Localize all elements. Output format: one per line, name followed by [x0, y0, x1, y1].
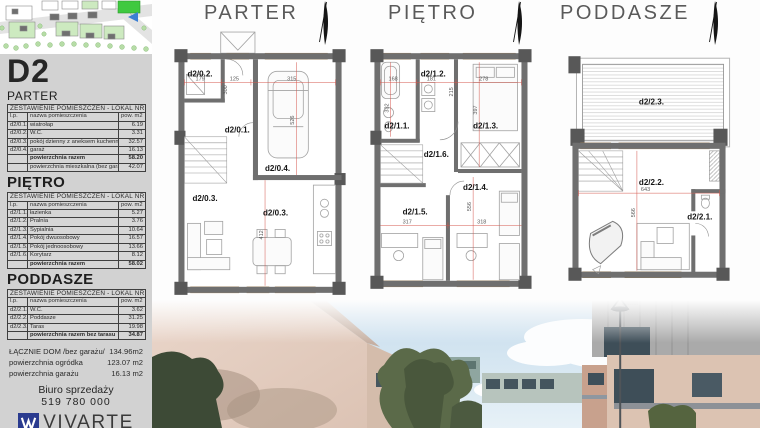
col-area: pow. m2 — [119, 201, 146, 209]
cell-area: 58.02 — [119, 260, 146, 268]
total-value: 134.96m2 — [109, 347, 143, 358]
entry-canopy — [221, 32, 255, 53]
plan-title-parter: PARTER — [204, 2, 298, 25]
parter-floor-plan: 179 125 315 300 526 412 d2/0.2. d2/0.1. … — [164, 26, 356, 318]
total-line: ŁĄCZNIE DOM /bez garażu/ 134.96m2 — [9, 347, 143, 358]
poddasze-room-table: ZESTAWIENIE POMIESZCZEŃ - LOKAL NR d2 l.… — [7, 289, 146, 340]
table-row: d2/0.2. W.C. 3.31 — [8, 130, 146, 138]
cell-area: 10.64 — [119, 226, 146, 234]
room-label: d2/1.2. — [421, 69, 446, 78]
cell-area: 3.76 — [119, 218, 146, 226]
summary-row: powierzchnia mieszkalna (bez garażu) 42.… — [8, 163, 146, 171]
dim-label: 315 — [287, 76, 296, 82]
cell-lp: d2/2.3. — [8, 323, 28, 331]
dim-label: 556 — [467, 202, 473, 211]
col-name: nazwa pomieszczenia — [28, 201, 119, 209]
col-lp: l.p. — [8, 201, 28, 209]
dim-label: 526 — [290, 115, 296, 124]
dim-label: 215 — [449, 87, 455, 96]
section-heading-pietro: PIĘTRO — [7, 174, 145, 191]
cell-name: Taras — [28, 323, 119, 331]
table-row: d2/2.3. Taras 19.98 — [8, 323, 146, 331]
summary-row: powierzchnia razem 58.02 — [8, 260, 146, 268]
cell-name: powierzchnia mieszkalna (bez garażu) — [28, 163, 119, 171]
site-plan-map — [0, 0, 152, 54]
table-row: d2/1.1. łazienka 5.27 — [8, 210, 146, 218]
room-label: d2/0.3. — [263, 208, 288, 217]
cell-name: garaż — [28, 147, 119, 155]
brand-row: VIVARTE — [0, 412, 152, 428]
dim-label: 125 — [230, 76, 239, 82]
cell-area: 32.57 — [119, 138, 146, 146]
dim-label: 317 — [403, 219, 412, 225]
table-row: d2/0.3. pokój dzienny z aneksem kuchenny… — [8, 138, 146, 146]
col-name: nazwa pomieszczenia — [28, 298, 119, 306]
cell-lp: d2/1.2. — [8, 218, 28, 226]
cell-area: 31.25 — [119, 315, 146, 323]
cell-name: powierzchnia razem — [28, 155, 119, 163]
plans-area: PARTER PIĘTRO PODDASZE — [152, 0, 760, 428]
cell-area: 58.20 — [119, 155, 146, 163]
cell-name: łazienka — [28, 210, 119, 218]
table-title: ZESTAWIENIE POMIESZCZEŃ - LOKAL NR d2 — [8, 289, 146, 297]
poddasze-floor-plan: 643 566 d2/2.3. d2/2.2. d2/2.1. — [552, 26, 746, 318]
cell-name: Poddasze — [28, 315, 119, 323]
cell-name: Korytarz — [28, 252, 119, 260]
car-icon — [268, 71, 308, 158]
section-heading-parter: PARTER — [7, 89, 145, 103]
room-label: d2/1.6. — [424, 150, 449, 159]
room-label: d2/1.1. — [385, 122, 410, 131]
cell-lp: d2/1.6. — [8, 252, 28, 260]
total-value: 16.13 m2 — [111, 369, 143, 380]
cell-lp: d2/0.1. — [8, 121, 28, 129]
room-label: d2/0.3. — [193, 194, 218, 203]
table-row: d2/2.1. W.C. 3.62 — [8, 306, 146, 314]
room-label: d2/1.5. — [403, 207, 428, 216]
section-heading-poddasze: PODDASZE — [7, 271, 145, 288]
dim-label: 643 — [641, 187, 650, 193]
cell-name: pokój dzienny z aneksem kuchennym — [28, 138, 119, 146]
cell-area: 5.27 — [119, 210, 146, 218]
table-row: d2/1.6. Korytarz 8.12 — [8, 252, 146, 260]
room-label: d2/1.4. — [463, 183, 488, 192]
parter-room-table: ZESTAWIENIE POMIESZCZEŃ - LOKAL NR d2 l.… — [7, 104, 146, 172]
table-row: d2/1.2. Pralnia 3.76 — [8, 218, 146, 226]
cell-name: W.C. — [28, 306, 119, 314]
cell-name: wiatrołap — [28, 121, 119, 129]
stairs — [184, 137, 226, 183]
sales-office-phone: 519 780 000 — [0, 396, 152, 408]
total-label: powierzchnia garażu — [9, 369, 79, 380]
total-line: powierzchnia ogródka 123.07 m2 — [9, 358, 143, 369]
table-row: d2/0.4. garaż 16.13 — [8, 147, 146, 155]
cell-lp: d2/1.4. — [8, 235, 28, 243]
total-value: 123.07 m2 — [107, 358, 143, 369]
summary-row: powierzchnia razem bez tarasu 34.87 — [8, 331, 146, 339]
brand-wordmark: VIVARTE — [43, 412, 134, 428]
cell-lp: d2/0.2. — [8, 130, 28, 138]
cell-area: 13.66 — [119, 243, 146, 251]
table-row: d2/1.3. Sypialnia 10.64 — [8, 226, 146, 234]
site-highlight-unit — [118, 1, 140, 13]
cell-area: 3.31 — [119, 130, 146, 138]
col-lp: l.p. — [8, 298, 28, 306]
cell-lp: d2/1.1. — [8, 210, 28, 218]
total-line: powierzchnia garażu 16.13 m2 — [9, 369, 143, 380]
room-label: d2/0.1. — [225, 126, 250, 135]
cell-area: 3.62 — [119, 306, 146, 314]
unit-title: D2 — [7, 55, 152, 87]
total-label: powierzchnia ogródka — [9, 358, 83, 369]
table-row: d2/1.4. Pokój dwuosobowy 16.57 — [8, 235, 146, 243]
cell-lp: d2/2.2. — [8, 315, 28, 323]
cell-name: W.C. — [28, 130, 119, 138]
dim-label: 318 — [477, 219, 486, 225]
cell-name: powierzchnia razem — [28, 260, 119, 268]
room-label: d2/0.4. — [265, 164, 290, 173]
cell-name: Pralnia — [28, 218, 119, 226]
sales-office-block: Biuro sprzedaży 519 780 000 VIVARTE sprz… — [0, 384, 152, 428]
sidebar: D2 PARTER ZESTAWIENIE POMIESZCZEŃ - LOKA… — [0, 0, 152, 428]
table-title: ZESTAWIENIE POMIESZCZEŃ - LOKAL NR d2 — [8, 193, 146, 201]
chimney-shaft — [709, 151, 719, 181]
dim-label: 278 — [479, 76, 488, 82]
cell-area: 6.19 — [119, 121, 146, 129]
cell-lp: d2/0.3. — [8, 138, 28, 146]
col-area: pow. m2 — [119, 113, 146, 121]
dim-label: 412 — [259, 230, 265, 239]
pietro-room-table: ZESTAWIENIE POMIESZCZEŃ - LOKAL NR d2 l.… — [7, 192, 146, 269]
table-title: ZESTAWIENIE POMIESZCZEŃ - LOKAL NR d2 — [8, 105, 146, 113]
cell-area: 8.12 — [119, 252, 146, 260]
vivarte-logo-icon — [18, 413, 39, 428]
cell-area: 19.98 — [119, 323, 146, 331]
stairs — [579, 151, 623, 191]
cell-lp: d2/2.1. — [8, 306, 28, 314]
table-row: d2/2.2. Poddasze 31.25 — [8, 315, 146, 323]
table-row: d2/1.5. Pokój jednoosobowy 13.66 — [8, 243, 146, 251]
room-label: d2/2.2. — [639, 178, 664, 187]
cell-name: Pokój jednoosobowy — [28, 243, 119, 251]
col-name: nazwa pomieszczenia — [28, 113, 119, 121]
total-label: ŁĄCZNIE DOM /bez garażu/ — [9, 347, 105, 358]
pietro-floor-plan: 168 181 278 215 332 397 317 318 556 d2/1… — [360, 26, 552, 318]
room-label: d2/0.2. — [187, 69, 212, 78]
dim-label: 397 — [473, 105, 479, 114]
cell-area: 16.13 — [119, 147, 146, 155]
dim-label: 566 — [631, 208, 637, 217]
dim-label: 168 — [389, 76, 398, 82]
cell-area: 34.87 — [119, 331, 146, 339]
cell-lp: d2/1.5. — [8, 243, 28, 251]
col-lp: l.p. — [8, 113, 28, 121]
cell-name: Sypialnia — [28, 226, 119, 234]
cell-name: powierzchnia razem bez tarasu — [28, 331, 119, 339]
room-label: d2/1.3. — [473, 122, 498, 131]
cell-area: 42.07 — [119, 163, 146, 171]
foreground-foliage — [152, 351, 224, 428]
cell-area: 16.57 — [119, 235, 146, 243]
plan-title-poddasze: PODDASZE — [560, 2, 690, 25]
sales-office-title: Biuro sprzedaży — [0, 384, 152, 396]
room-label: d2/2.1. — [687, 212, 712, 221]
dim-label: 332 — [385, 103, 391, 112]
cell-name: Pokój dwuosobowy — [28, 235, 119, 243]
cell-lp: d2/0.4. — [8, 147, 28, 155]
plan-title-pietro: PIĘTRO — [388, 2, 477, 25]
stairs — [380, 145, 422, 183]
col-area: pow. m2 — [119, 298, 146, 306]
cell-lp: d2/1.3. — [8, 226, 28, 234]
dim-label: 300 — [223, 85, 229, 94]
area-totals: ŁĄCZNIE DOM /bez garażu/ 134.96m2 powier… — [9, 347, 143, 379]
room-label: d2/2.3. — [639, 98, 664, 107]
table-row: d2/0.1. wiatrołap 6.19 — [8, 121, 146, 129]
summary-row: powierzchnia razem 58.20 — [8, 155, 146, 163]
